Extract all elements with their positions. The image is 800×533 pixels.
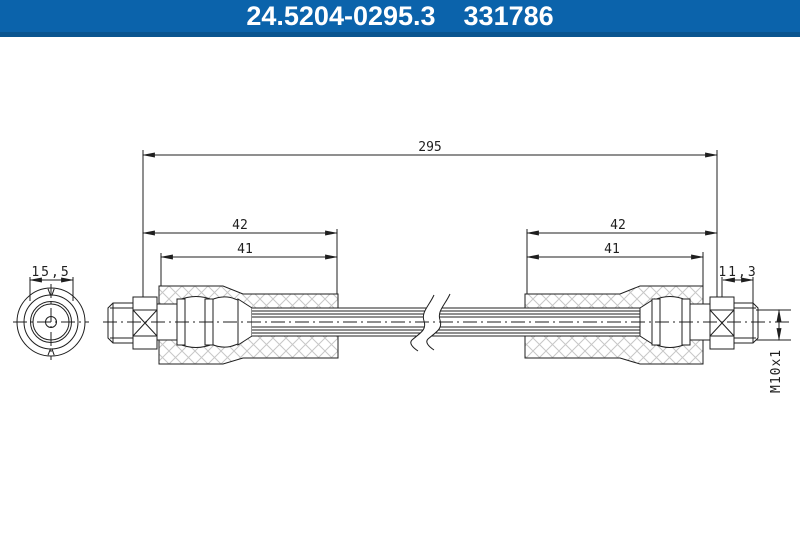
end-view — [13, 284, 89, 360]
dimension-overall-length: 295 — [143, 140, 717, 297]
left-fitting — [108, 297, 252, 350]
right-thread-end — [734, 303, 758, 343]
dim-42-left-label: 42 — [232, 218, 248, 233]
dimension-right-42: 42 — [527, 218, 717, 294]
dimension-right-41: 41 — [527, 242, 703, 286]
dimension-left-41: 41 — [161, 242, 337, 286]
thread-spec-label: M10x1 — [769, 349, 784, 393]
technical-drawing: 295 42 41 42 41 15,5 11,3 M10x1 — [0, 0, 800, 533]
dim-295-label: 295 — [418, 140, 441, 155]
dim-11-3-label: 11,3 — [718, 265, 757, 280]
dim-42-right-label: 42 — [610, 218, 626, 233]
dim-15-5-label: 15,5 — [31, 265, 70, 280]
ext-lines-295 — [143, 150, 717, 297]
dim-41-left-label: 41 — [237, 242, 253, 257]
left-thread-end — [108, 303, 133, 343]
ext-lines-thread — [756, 310, 791, 340]
dim-41-right-label: 41 — [604, 242, 620, 257]
